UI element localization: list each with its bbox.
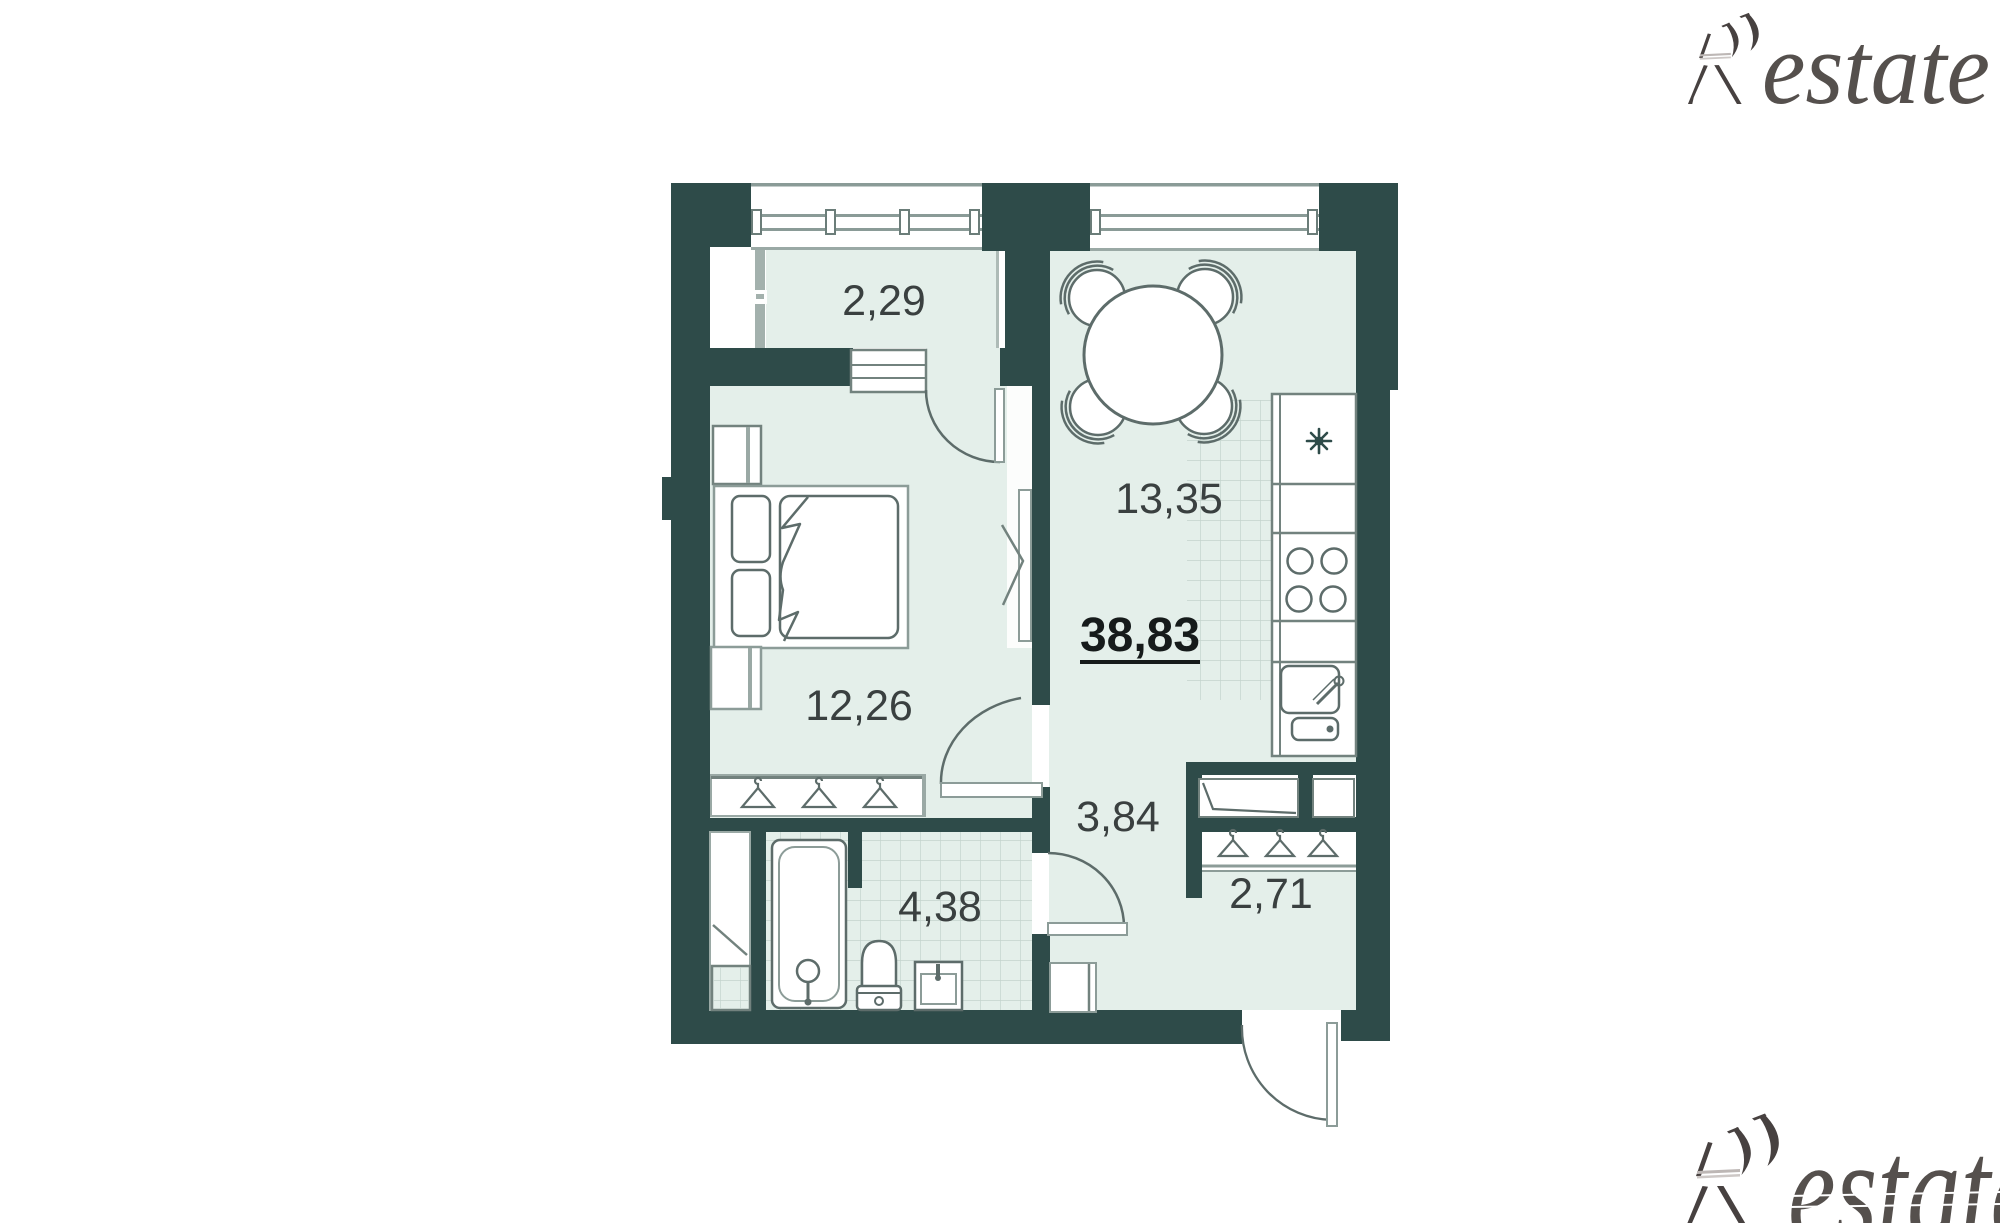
svg-text:13,35: 13,35 (1115, 475, 1223, 523)
svg-text:2,29: 2,29 (842, 277, 926, 325)
svg-text:38,83: 38,83 (1080, 609, 1200, 662)
svg-text:estate: estate (1762, 12, 1990, 126)
svg-text:2,71: 2,71 (1229, 870, 1313, 918)
svg-text:4,38: 4,38 (898, 883, 982, 931)
svg-text:3,84: 3,84 (1076, 793, 1160, 841)
svg-text:12,26: 12,26 (805, 682, 913, 730)
